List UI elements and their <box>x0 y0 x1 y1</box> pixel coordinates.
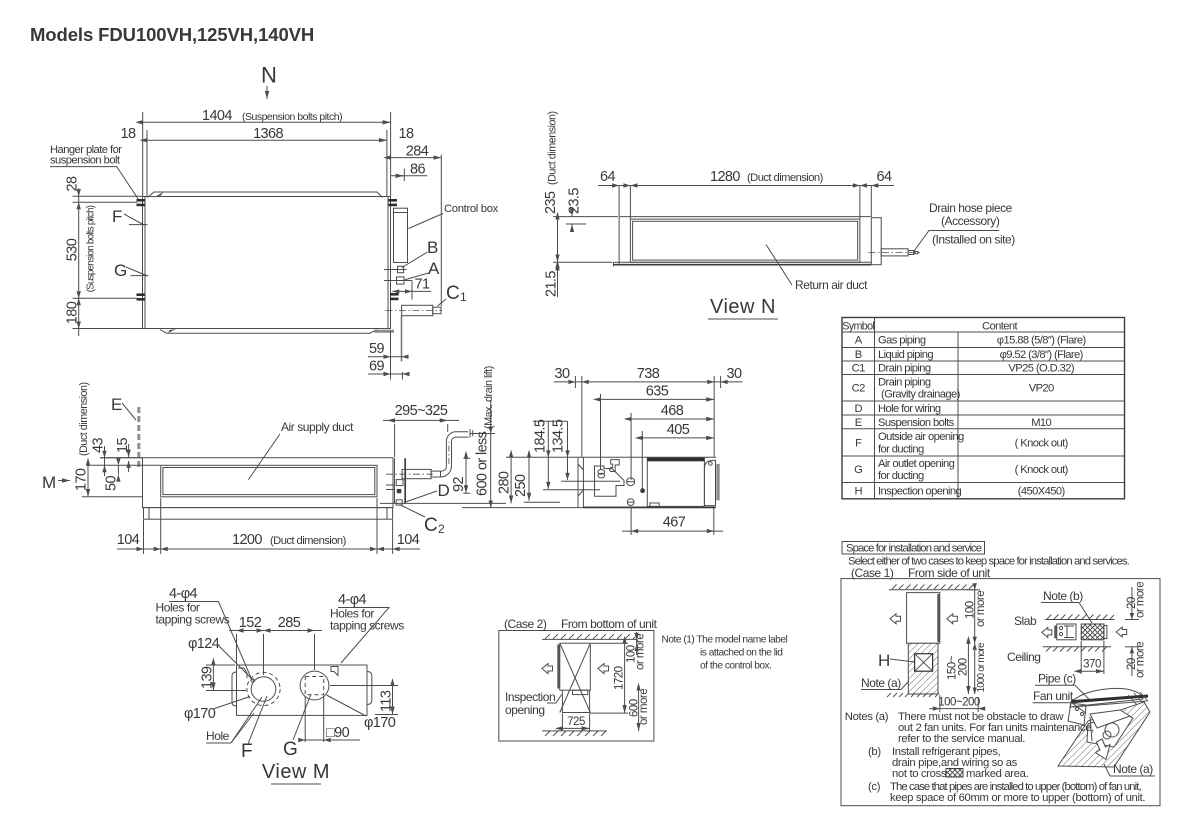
svg-text:H: H <box>854 486 862 498</box>
svg-text:(c): (c) <box>868 781 881 793</box>
svg-text:280: 280 <box>497 471 513 494</box>
svg-text:Inspection opening: Inspection opening <box>878 486 962 498</box>
svg-text:or more: or more <box>635 634 647 670</box>
svg-text:is attached on the lid: is attached on the lid <box>700 648 783 659</box>
svg-text:Hole: Hole <box>206 729 230 743</box>
svg-text:N: N <box>261 63 277 88</box>
svg-text:1: 1 <box>460 290 467 304</box>
svg-text:(b): (b) <box>868 746 881 758</box>
svg-text:Notes (a): Notes (a) <box>845 711 889 723</box>
svg-text:64: 64 <box>600 169 615 185</box>
svg-text:(Case 2): (Case 2) <box>504 617 547 631</box>
svg-text:Pipe (c): Pipe (c) <box>1038 672 1076 686</box>
svg-text:of the control box.: of the control box. <box>700 661 771 672</box>
svg-text:1200: 1200 <box>232 532 262 548</box>
svg-text:B: B <box>427 238 438 257</box>
svg-text:(Case 1): (Case 1) <box>851 566 894 580</box>
svg-text:D: D <box>438 481 450 500</box>
svg-text:284: 284 <box>406 144 429 160</box>
svg-text:E: E <box>855 417 862 429</box>
svg-text:φ170: φ170 <box>364 715 396 731</box>
svg-text:(Gravity drainage): (Gravity drainage) <box>881 389 961 401</box>
svg-text:64: 64 <box>877 169 892 185</box>
svg-text:1368: 1368 <box>253 126 283 142</box>
svg-text:From bottom of unit: From bottom of unit <box>561 617 658 631</box>
svg-text:(Suspension bolts pitch): (Suspension bolts pitch) <box>242 111 342 123</box>
svg-text:□90: □90 <box>326 725 350 741</box>
svg-text:H: H <box>878 651 890 670</box>
svg-text:Gas piping: Gas piping <box>878 335 926 347</box>
svg-text:G: G <box>283 739 298 760</box>
svg-text:M: M <box>42 473 56 492</box>
svg-text:184.5: 184.5 <box>533 419 549 453</box>
svg-text:113: 113 <box>379 690 395 712</box>
svg-text:D: D <box>854 403 862 415</box>
svg-text:φ15.88 (5/8″) (Flare): φ15.88 (5/8″) (Flare) <box>997 335 1087 347</box>
svg-text:Note (a): Note (a) <box>861 676 901 690</box>
svg-text:152: 152 <box>239 615 262 631</box>
svg-text:keep space of 60mm or more to: keep space of 60mm or more to upper (bot… <box>890 792 1145 804</box>
svg-text:(450X450): (450X450) <box>1018 486 1066 498</box>
svg-text:180: 180 <box>65 301 81 324</box>
svg-text:2: 2 <box>438 522 445 536</box>
svg-text:Note (a): Note (a) <box>1113 762 1153 776</box>
svg-text:23.5: 23.5 <box>567 188 583 214</box>
svg-text:1404: 1404 <box>202 108 232 124</box>
svg-text:285: 285 <box>278 615 301 631</box>
svg-text:295~325: 295~325 <box>395 403 448 419</box>
svg-text:43: 43 <box>91 438 107 453</box>
svg-text:30: 30 <box>727 366 742 382</box>
svg-text:for ducting: for ducting <box>878 470 924 482</box>
svg-text:E: E <box>111 395 122 414</box>
svg-text:Slab: Slab <box>1014 614 1037 628</box>
svg-text:M10: M10 <box>1031 417 1051 429</box>
svg-text:134.5: 134.5 <box>551 419 567 453</box>
svg-text:30: 30 <box>555 366 570 382</box>
svg-text:( Knock out): ( Knock out) <box>1015 464 1069 476</box>
svg-text:(Installed on site): (Installed on site) <box>932 233 1015 247</box>
svg-text:69: 69 <box>369 359 384 375</box>
svg-text:530: 530 <box>65 238 81 261</box>
svg-text:VP25 (O.D.32): VP25 (O.D.32) <box>1008 363 1074 375</box>
svg-text:170: 170 <box>74 468 90 491</box>
svg-text:Drain hose piece: Drain hose piece <box>929 201 1013 215</box>
svg-text:marked area.: marked area. <box>966 768 1029 780</box>
svg-text:F: F <box>112 207 122 226</box>
svg-text:Control box: Control box <box>444 203 499 215</box>
svg-text:Drain piping: Drain piping <box>878 377 931 389</box>
svg-text:235: 235 <box>543 191 559 214</box>
svg-text:139: 139 <box>200 666 216 689</box>
svg-text:A: A <box>855 335 863 347</box>
svg-text:for ducting: for ducting <box>878 443 924 455</box>
svg-text:725: 725 <box>567 716 585 728</box>
svg-text:18: 18 <box>399 126 414 142</box>
svg-text:opening: opening <box>505 703 545 717</box>
svg-text:G: G <box>114 261 127 280</box>
svg-text:50: 50 <box>104 476 120 491</box>
svg-text:Hole for wiring: Hole for wiring <box>878 403 941 415</box>
svg-text:1000 or more: 1000 or more <box>976 642 987 693</box>
svg-text:18: 18 <box>121 126 136 142</box>
svg-text:View N: View N <box>710 296 776 318</box>
svg-text:468: 468 <box>661 403 684 419</box>
svg-text:250: 250 <box>513 474 529 497</box>
svg-text:Liquid piping: Liquid piping <box>878 349 933 361</box>
svg-text:tapping screws: tapping screws <box>330 619 404 633</box>
svg-text:View M: View M <box>262 761 330 783</box>
svg-text:φ124: φ124 <box>188 636 220 652</box>
svg-text:(Suspension bolts pitch): (Suspension bolts pitch) <box>86 205 97 292</box>
svg-text:(Duct dimension): (Duct dimension) <box>547 111 559 185</box>
svg-text:( Knock out): ( Knock out) <box>1015 437 1069 449</box>
svg-text:G: G <box>854 464 862 476</box>
svg-text:467: 467 <box>663 515 686 531</box>
svg-text:Note (b): Note (b) <box>1043 589 1083 603</box>
svg-text:Content: Content <box>982 321 1018 333</box>
svg-text:370: 370 <box>1083 659 1101 671</box>
svg-text:(Duct dimension): (Duct dimension) <box>270 535 347 547</box>
svg-text:Drain piping: Drain piping <box>878 363 931 375</box>
svg-text:92: 92 <box>451 477 467 492</box>
svg-text:104: 104 <box>397 532 420 548</box>
svg-text:tapping screws: tapping screws <box>156 613 230 627</box>
svg-text:From side of unit: From side of unit <box>908 566 991 580</box>
svg-text:100~200: 100~200 <box>938 697 980 709</box>
svg-text:F: F <box>241 741 253 762</box>
svg-text:refer to the service manual.: refer to the service manual. <box>898 733 1025 745</box>
svg-text:Inspection: Inspection <box>505 690 555 704</box>
svg-text:F: F <box>855 437 862 449</box>
svg-text:B: B <box>855 349 862 361</box>
svg-text:1280: 1280 <box>710 169 740 185</box>
svg-text:405: 405 <box>667 422 690 438</box>
svg-text:or more: or more <box>975 591 987 627</box>
svg-text:Air outlet opening: Air outlet opening <box>878 458 955 470</box>
svg-text:Fan unit: Fan unit <box>1033 689 1074 703</box>
svg-text:not to cross: not to cross <box>892 768 947 780</box>
svg-text:71: 71 <box>415 277 430 293</box>
svg-text:C: C <box>446 283 460 304</box>
svg-text:φ9.52 (3/8″) (Flare): φ9.52 (3/8″) (Flare) <box>1000 349 1084 361</box>
svg-text:15: 15 <box>115 438 131 453</box>
svg-text:Outside air opening: Outside air opening <box>878 431 964 443</box>
svg-text:Space for installation and ser: Space for installation and service <box>846 543 982 555</box>
svg-text:Note (1) The model name label: Note (1) The model name label <box>662 635 788 646</box>
svg-text:635: 635 <box>646 384 669 400</box>
svg-text:(Accessory): (Accessory) <box>941 214 1000 228</box>
svg-text:suspension bolt: suspension bolt <box>50 155 121 167</box>
svg-text:Ceiling: Ceiling <box>1007 650 1041 664</box>
svg-text:(Max. drain lift): (Max. drain lift) <box>483 366 495 429</box>
svg-text:or more: or more <box>638 689 650 725</box>
svg-text:φ170: φ170 <box>184 706 216 722</box>
svg-text:C: C <box>424 515 438 536</box>
svg-text:86: 86 <box>410 162 425 178</box>
svg-text:28: 28 <box>65 176 81 191</box>
svg-text:738: 738 <box>637 366 660 382</box>
svg-text:or more: or more <box>1135 582 1147 618</box>
svg-text:Air supply duct: Air supply duct <box>281 420 354 434</box>
svg-text:Suspension bolts: Suspension bolts <box>878 417 955 429</box>
svg-text:(Duct dimension): (Duct dimension) <box>747 172 824 184</box>
svg-text:59: 59 <box>369 341 384 357</box>
svg-text:200: 200 <box>958 658 970 676</box>
svg-text:Models FDU100VH,125VH,140VH: Models FDU100VH,125VH,140VH <box>30 24 314 45</box>
svg-text:(Duct dimension): (Duct dimension) <box>78 382 90 456</box>
svg-text:A: A <box>428 259 440 278</box>
svg-text:C1: C1 <box>852 363 865 375</box>
svg-text:21.5: 21.5 <box>544 271 560 297</box>
svg-text:VP20: VP20 <box>1029 383 1054 395</box>
svg-text:Symbol: Symbol <box>842 321 874 333</box>
svg-text:104: 104 <box>117 532 140 548</box>
svg-text:600 or less: 600 or less <box>475 431 491 496</box>
svg-text:or more: or more <box>1135 642 1147 678</box>
svg-text:C2: C2 <box>852 383 865 395</box>
svg-text:1720: 1720 <box>614 666 626 690</box>
svg-text:Return air duct: Return air duct <box>795 278 868 292</box>
